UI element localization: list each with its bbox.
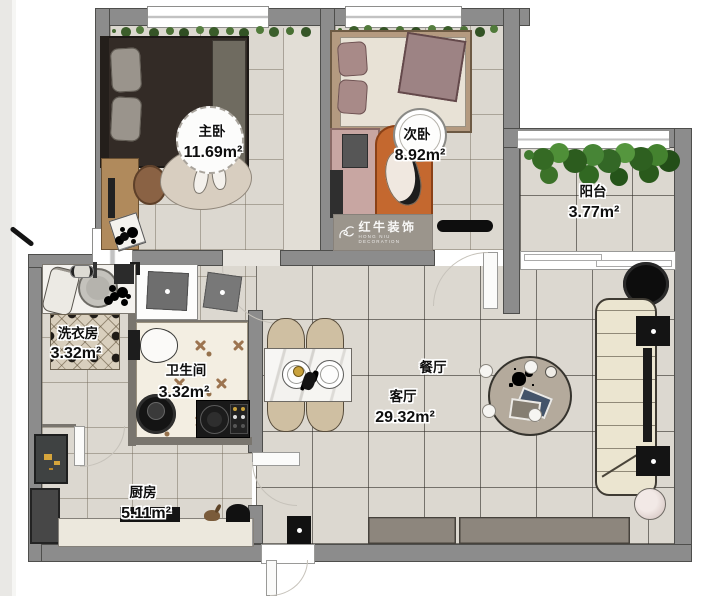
living-area: 29.32m²: [375, 409, 435, 427]
laundry-plant: [110, 292, 119, 301]
shower-tray: [146, 271, 189, 311]
brand-watermark: 红牛装饰 HONG NIU DECORATION: [333, 214, 433, 251]
toilet-tank: [128, 330, 140, 360]
master-wardrobe-strip: [283, 28, 320, 250]
balcony-floor: [520, 148, 674, 252]
living-label: 客厅: [390, 385, 417, 405]
wall-outer-right: [674, 128, 692, 562]
balcony-window: [517, 130, 670, 149]
line-bathroom-top: [136, 320, 248, 322]
second-bed-blanket: [398, 32, 467, 103]
sofa-console-bar: [643, 348, 652, 442]
balcony-sliding-panel: [524, 254, 602, 261]
balcony-label: 阳台: [580, 180, 607, 200]
floor-stone: [479, 364, 493, 378]
master-bedroom-area: 11.69m²: [184, 144, 243, 162]
counter-burner: [200, 405, 229, 434]
bathroom-area: 3.32m²: [159, 384, 210, 402]
entry-door-arc: [270, 560, 308, 596]
cup: [545, 366, 557, 378]
laundry-label: 洗衣房: [58, 322, 99, 342]
shoe-cabinet: [459, 517, 630, 544]
floor-stone: [524, 360, 538, 374]
soap-tray: [70, 265, 94, 278]
sofa-side-table: [636, 446, 670, 476]
fridge-items: [44, 454, 52, 460]
master-desk-item: [108, 178, 115, 218]
master-bedroom-label: 主卧: [199, 120, 226, 140]
bathroom-tile-x: [215, 376, 228, 389]
second-tv-bar: [437, 220, 493, 232]
kitchen-dome: [226, 504, 250, 522]
laundry-corner-box: [114, 264, 134, 284]
wall-bath-kitchen-divider: [128, 437, 252, 445]
second-bedroom-area: 8.92m²: [395, 147, 446, 165]
master-pillow: [110, 47, 142, 93]
floor-stone: [482, 404, 496, 418]
master-window: [147, 6, 269, 28]
stove-knob: [233, 407, 237, 411]
second-shelf: [330, 170, 343, 218]
coffee-table-plant: [512, 372, 526, 386]
bathroom-tile-x: [232, 338, 245, 351]
second-bedroom-label: 次卧: [404, 123, 431, 143]
master-label-disc: [176, 106, 244, 174]
kitchen-tall-cabinet: [30, 488, 60, 544]
floor-plan: 红牛装饰 HONG NIU DECORATION 主卧 11.69m² 次卧 8…: [0, 0, 704, 596]
balcony-plants: [524, 150, 534, 160]
second-desk-pad: [342, 134, 368, 168]
wall-outer-bottom-right: [312, 544, 692, 562]
brand-text-block: 红牛装饰 HONG NIU DECORATION: [359, 221, 430, 244]
outside-left-strip: [0, 0, 16, 596]
floor-lamp: [634, 488, 666, 520]
teapot-gold: [293, 366, 304, 377]
entry-doormat: [287, 516, 311, 544]
balcony-area: 3.77m²: [569, 204, 620, 222]
sofa-side-table: [636, 316, 670, 346]
bathroom-tile-x: [194, 338, 207, 351]
bull-logo-icon: [337, 223, 356, 243]
bathroom-label: 卫生间: [166, 359, 207, 379]
master-bed-headboard: [100, 36, 109, 168]
second-bedroom-door-arc: [433, 252, 488, 306]
second-pillow: [337, 79, 368, 115]
shoe-cabinet: [368, 517, 456, 544]
second-pillow: [337, 41, 368, 77]
wall-bedrooms-bottom-b: [280, 250, 435, 266]
kitchen-area: 5.11m²: [121, 505, 171, 523]
plate: [315, 360, 344, 389]
dining-label: 餐厅: [420, 356, 447, 376]
floor-stone: [528, 408, 542, 422]
wall-secondbr-right: [503, 8, 520, 314]
bathroom-sink-inner: [147, 402, 165, 420]
master-door-opening: [223, 250, 280, 266]
master-garland: [112, 29, 116, 33]
laundry-area: 3.32m²: [51, 345, 102, 363]
brand-name: 红牛装饰: [359, 221, 430, 233]
wall-bathroom-right: [248, 310, 263, 453]
brand-subtitle: HONG NIU DECORATION: [359, 235, 430, 244]
line-laundry-kitchen: [42, 424, 76, 427]
second-bedroom-window: [345, 6, 462, 28]
master-door-leaf: [203, 272, 243, 313]
master-pillow: [110, 96, 142, 142]
kitchen-label: 厨房: [130, 481, 157, 501]
master-plant-black: [120, 232, 129, 241]
